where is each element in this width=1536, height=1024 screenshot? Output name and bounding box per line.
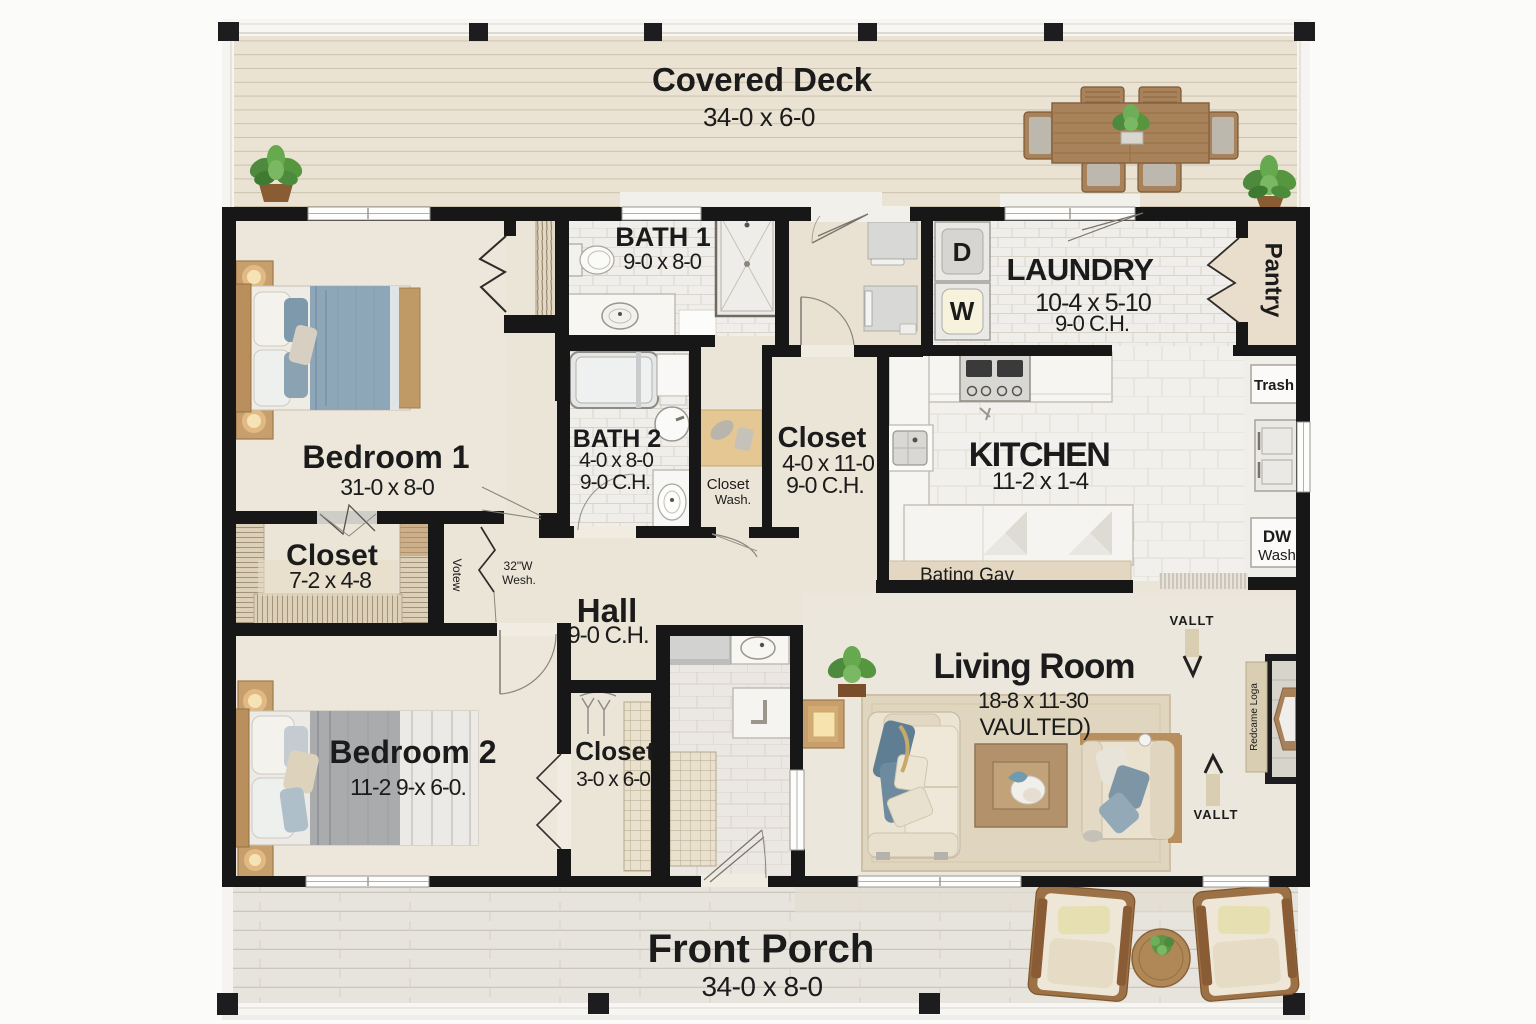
svg-text:9-0 x 8-0: 9-0 x 8-0 [623, 249, 702, 274]
svg-text:LAUNDRY: LAUNDRY [1007, 252, 1155, 287]
svg-text:Wash.: Wash. [715, 492, 751, 507]
svg-text:BATH 1: BATH 1 [615, 222, 711, 252]
svg-text:Closet: Closet [707, 476, 750, 493]
svg-text:11-2 9-x 6-0.: 11-2 9-x 6-0. [350, 774, 466, 800]
svg-text:32"W: 32"W [504, 559, 534, 573]
svg-text:Covered Deck: Covered Deck [652, 61, 873, 98]
svg-text:Closet: Closet [575, 736, 655, 766]
svg-text:7-2 x 4-8: 7-2 x 4-8 [289, 567, 371, 593]
svg-text:Wash: Wash [1258, 547, 1296, 564]
svg-text:D: D [953, 237, 972, 267]
svg-text:DW: DW [1263, 527, 1292, 546]
svg-text:Wesh.: Wesh. [502, 573, 536, 587]
svg-text:18-8 x 11-30: 18-8 x 11-30 [978, 688, 1089, 713]
svg-text:W: W [950, 296, 975, 326]
svg-text:9-0 C.H.: 9-0 C.H. [580, 471, 650, 494]
svg-text:9-0 C.H.: 9-0 C.H. [1055, 311, 1129, 336]
svg-text:3-0 x 6-0: 3-0 x 6-0 [576, 768, 650, 791]
svg-text:Votew: Votew [450, 559, 464, 592]
svg-text:Living Room: Living Room [934, 647, 1135, 686]
svg-text:Trash: Trash [1254, 377, 1294, 394]
svg-text:11-2 x 1-4: 11-2 x 1-4 [992, 468, 1089, 495]
svg-text:9-0 C.H.: 9-0 C.H. [786, 472, 864, 498]
svg-text:VAULTED): VAULTED) [979, 714, 1090, 741]
svg-text:34-0 x 6-0: 34-0 x 6-0 [703, 102, 815, 132]
svg-text:Redcame Loga: Redcame Loga [1249, 683, 1260, 751]
svg-text:4-0 x 8-0: 4-0 x 8-0 [579, 449, 653, 472]
svg-text:VALLT: VALLT [1170, 613, 1215, 628]
svg-text:Bating Gav: Bating Gav [920, 565, 1014, 586]
svg-text:Bedroom 1: Bedroom 1 [302, 439, 469, 475]
svg-text:31-0 x 8-0: 31-0 x 8-0 [340, 474, 434, 500]
svg-text:VALLT: VALLT [1194, 807, 1239, 822]
svg-text:34-0 x 8-0: 34-0 x 8-0 [701, 971, 822, 1002]
svg-text:Bedroom 2: Bedroom 2 [329, 734, 496, 770]
svg-text:Pantry: Pantry [1260, 243, 1287, 318]
svg-text:Front Porch: Front Porch [648, 927, 875, 971]
svg-text:9-0 C.H.: 9-0 C.H. [567, 622, 648, 649]
